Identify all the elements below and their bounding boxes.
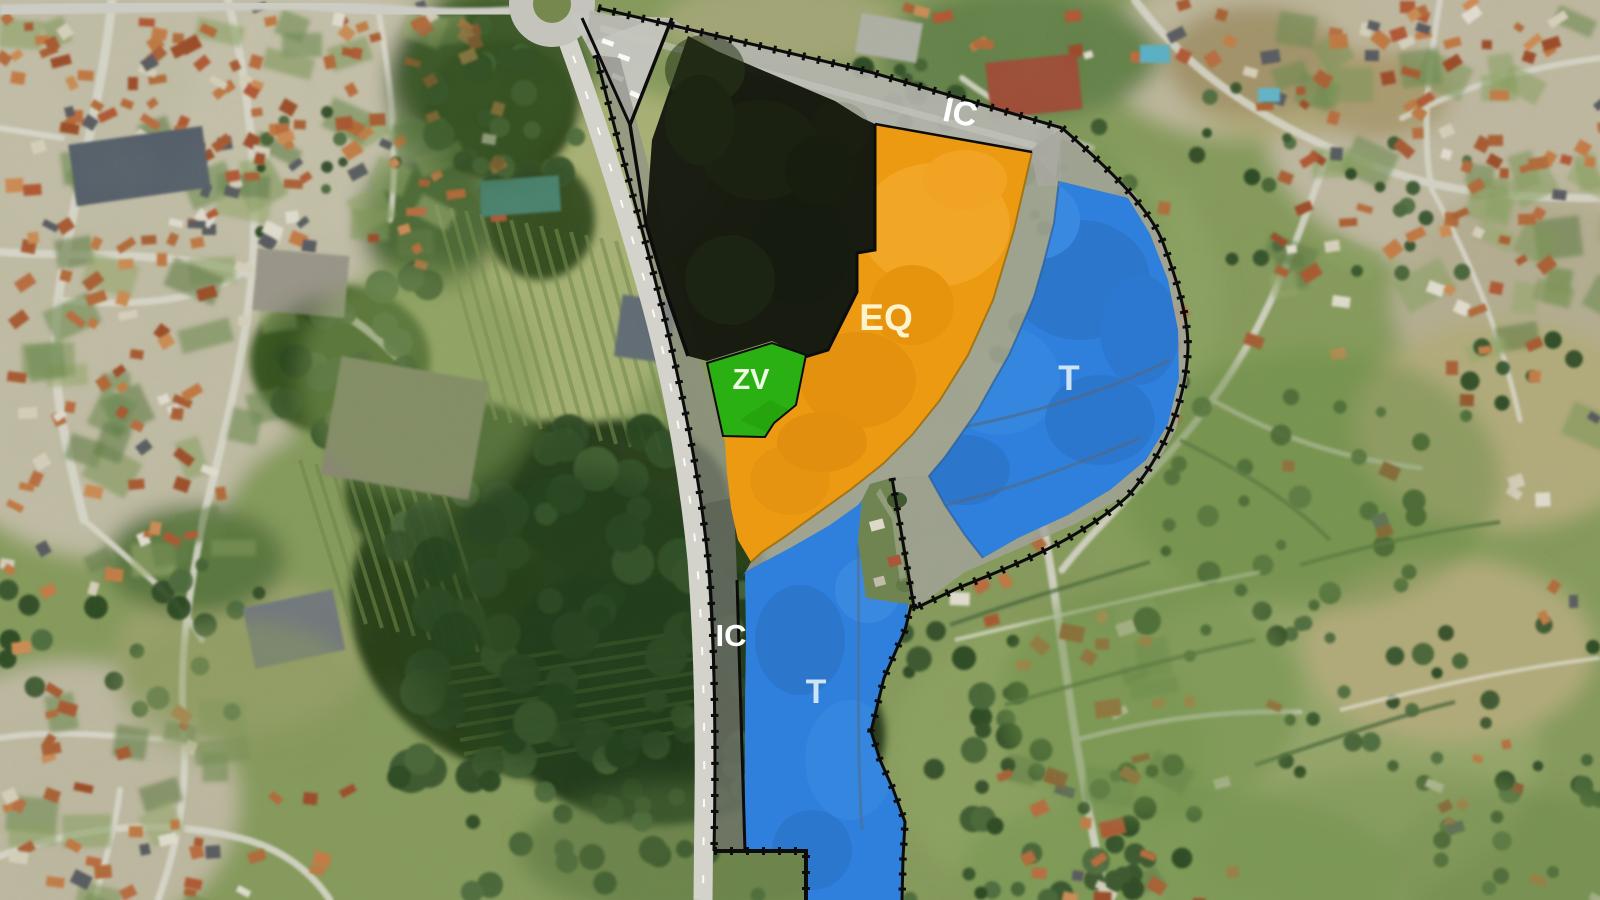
svg-text:T: T	[806, 673, 827, 711]
svg-text:ZV: ZV	[732, 364, 770, 396]
svg-text:T: T	[1058, 359, 1079, 398]
svg-text:EQ: EQ	[859, 297, 912, 338]
svg-text:IC: IC	[716, 618, 747, 653]
